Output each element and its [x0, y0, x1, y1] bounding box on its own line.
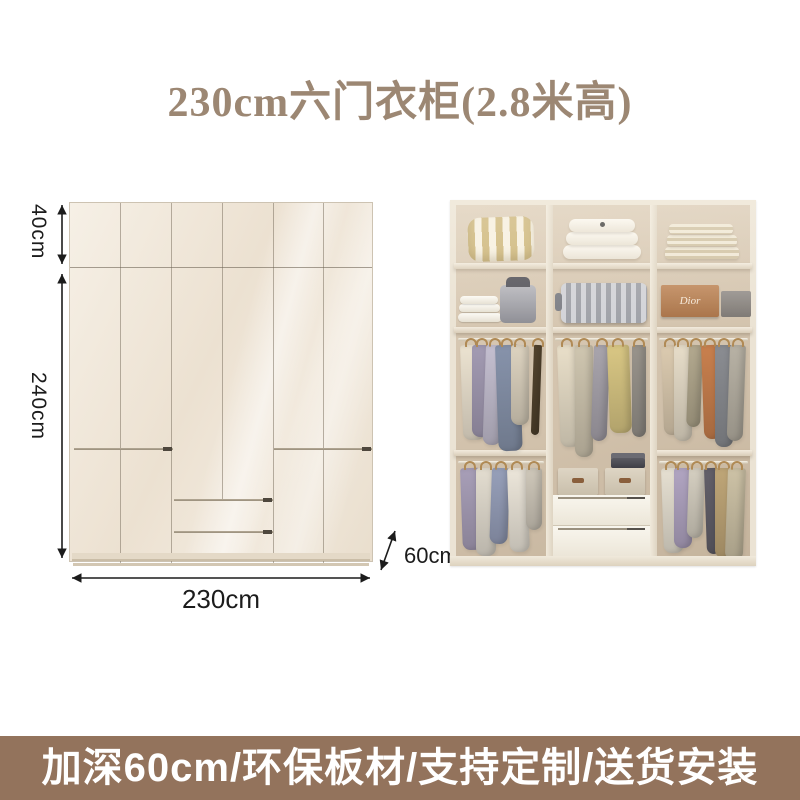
- box-handle: [619, 478, 631, 483]
- hanger-hook: [578, 338, 590, 347]
- striped-pillow: [467, 216, 534, 262]
- suitcase: [561, 283, 647, 323]
- dim-label-body-height: 240cm: [26, 372, 50, 440]
- hanger-hook: [731, 461, 743, 470]
- hanger-hook: [464, 461, 476, 470]
- hanging-clothes-bottom-right: [657, 456, 750, 556]
- hanger-hook: [718, 338, 730, 347]
- box-handle: [572, 478, 584, 483]
- shelf-cell-pillow: [456, 205, 546, 263]
- middle-drawer-section: [553, 456, 650, 556]
- hanger-hook: [732, 338, 744, 347]
- shelf-cell-suitcase: [553, 269, 650, 327]
- divider-panel: [546, 205, 553, 556]
- garment: [531, 345, 542, 435]
- drawer-slot: [558, 497, 645, 499]
- hanger-hook: [514, 338, 526, 347]
- hanger-hook: [595, 338, 607, 347]
- drawer-unit: [553, 495, 650, 556]
- fabric-storage-box: [558, 468, 598, 495]
- storage-box: [721, 291, 751, 317]
- hanger-hook: [677, 461, 689, 470]
- hanger-hook: [677, 338, 689, 347]
- drawer-slot: [558, 528, 645, 530]
- garment: [511, 345, 529, 425]
- hanging-clothes-bottom-left: [456, 456, 546, 556]
- hanger-hook: [528, 461, 540, 470]
- hanger-hook: [510, 461, 522, 470]
- dim-label-width: 230cm: [69, 584, 373, 615]
- drawer: [553, 495, 650, 526]
- hanging-clothes-top-right: [657, 333, 750, 450]
- folded-duvet: [563, 245, 641, 259]
- shelf-cell-boxes: Dior: [657, 269, 750, 327]
- shelf-cell-duvets: [553, 205, 650, 263]
- divider-panel: [650, 205, 657, 556]
- garment: [727, 345, 746, 441]
- folded-towel: [458, 313, 502, 322]
- folded-blanket: [667, 235, 737, 246]
- garment-steamer: [500, 285, 536, 323]
- dior-box: Dior: [661, 285, 719, 317]
- dimension-arrows: [0, 180, 460, 630]
- hanger-hook: [480, 461, 492, 470]
- photo-plinth: [450, 556, 756, 566]
- dim-label-top-height: 40cm: [26, 204, 50, 259]
- dior-box-label: Dior: [680, 295, 701, 307]
- product-image: 230cm六门衣柜(2.8米高): [0, 0, 800, 800]
- hanger-hook: [561, 338, 573, 347]
- garment: [686, 468, 704, 539]
- shelf-cell-towels: [456, 269, 546, 327]
- shelf-cell-blankets: [657, 205, 750, 263]
- folded-towel: [459, 304, 500, 312]
- folded-towel: [460, 296, 498, 304]
- drawer: [553, 526, 650, 557]
- garment: [607, 345, 632, 434]
- garment: [575, 345, 593, 457]
- arrow-60cm: [381, 531, 395, 570]
- hanger-hook: [532, 338, 544, 347]
- garment: [632, 345, 646, 437]
- hanger-hook: [691, 461, 703, 470]
- garment: [725, 468, 746, 561]
- promo-banner: 加深60cm/环保板材/支持定制/送货安装: [0, 736, 800, 800]
- fabric-storage-box: [605, 468, 645, 495]
- hanger-hook: [495, 461, 507, 470]
- interior-photo: Dior: [450, 200, 756, 566]
- hanger-hook: [633, 338, 645, 347]
- garment: [526, 468, 542, 530]
- folded-duvet: [566, 232, 638, 245]
- hanger-hook: [612, 338, 624, 347]
- folded-blanket: [665, 247, 739, 259]
- hanging-clothes-top-left: [456, 333, 546, 450]
- page-title: 230cm六门衣柜(2.8米高): [0, 68, 800, 129]
- folded-clothes-stack: [611, 458, 645, 468]
- duvet-button: [600, 222, 605, 227]
- folded-blanket: [669, 224, 733, 234]
